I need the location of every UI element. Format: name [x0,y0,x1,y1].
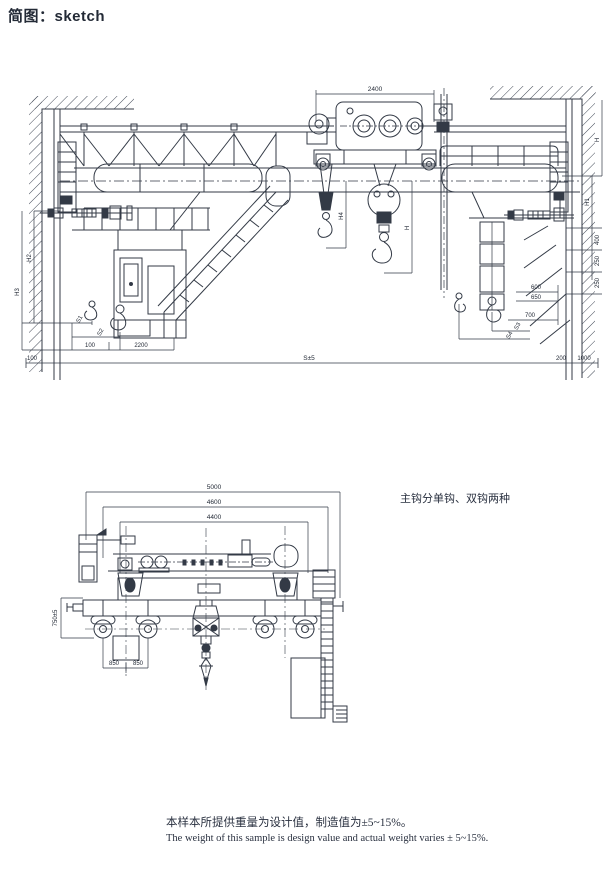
dim-s3: S3 [514,321,523,331]
girder-section [118,573,298,600]
dim-200: 200 [556,356,567,362]
trolley-hoist [307,102,436,170]
dim-span: S±5 [303,355,315,362]
dim-5000: 5000 [207,484,222,491]
dim-4600: 4600 [207,499,222,506]
main-girder-left [94,164,290,206]
left-platform-railing [72,192,210,230]
trolley-machinery [108,540,328,572]
dim-h1: H1 [585,198,591,206]
dim-650: 650 [531,295,542,301]
dim-600: 600 [531,285,542,291]
dim-700: 700 [525,313,536,319]
dim-2200: 2200 [134,343,148,349]
crane-end-view-drawing: 5000 4600 4400 [33,478,378,753]
dim-h2: H2 [27,254,33,262]
stairway [158,186,288,338]
dimension-trolley-width: 2400 [316,86,434,122]
cabinet-right [291,658,325,718]
building-column [434,88,452,298]
dim-100: 100 [85,343,96,349]
aux-hook [318,164,333,237]
span-dimension: S±5 100 [26,355,598,368]
note-main-hook-types: 主钩分单钩、双钩两种 [400,490,510,506]
footer-note-zh: 本样本所提供重量为设计值，制造值为±5~15%。 [166,814,412,830]
bridge-flange-lines [60,168,580,192]
dim-2400: 2400 [368,86,383,93]
dim-h3: H3 [15,288,21,296]
dimensions-gauge: 850 850 [103,638,148,673]
dim-250a: 250 [595,255,601,266]
main-hook [368,164,400,263]
dim-850-left: 850 [109,661,120,667]
dim-h-right: H [595,138,601,142]
dim-850-right: 850 [133,661,144,667]
dim-4400: 4400 [207,514,222,521]
dim-s2: S2 [97,327,106,337]
dim-1000: 1000 [577,356,591,362]
dim-750: 750±5 [53,609,59,626]
end-truck-right [550,142,568,212]
crane-front-elevation-drawing: 2400 H4 H [14,80,604,425]
hook-symbols-right [455,293,501,322]
dimensions-top-widths: 5000 4600 4400 [86,484,340,598]
dim-400: 400 [595,234,601,245]
left-stand-panel [79,529,135,582]
dimensions-left-vertical: H2 H3 [15,211,72,350]
end-truck-left [58,142,76,212]
hook-symbols-left [85,301,126,330]
dim-h: H [405,226,411,230]
dim-h4: H4 [339,212,345,220]
dimensions-bottom-right: S3 S4 600 650 700 200 1000 [459,285,591,362]
operator-cab [114,230,186,338]
buffer-right [504,208,574,221]
ladder-right [313,570,347,722]
footer-note-en: The weight of this sample is design valu… [166,833,488,844]
page-title: 简图：sketch [8,5,105,26]
right-girder-railing [440,146,558,166]
dim-corner-100: 100 [27,356,38,362]
bridge-truss [60,124,566,166]
dim-250b: 250 [595,277,601,288]
